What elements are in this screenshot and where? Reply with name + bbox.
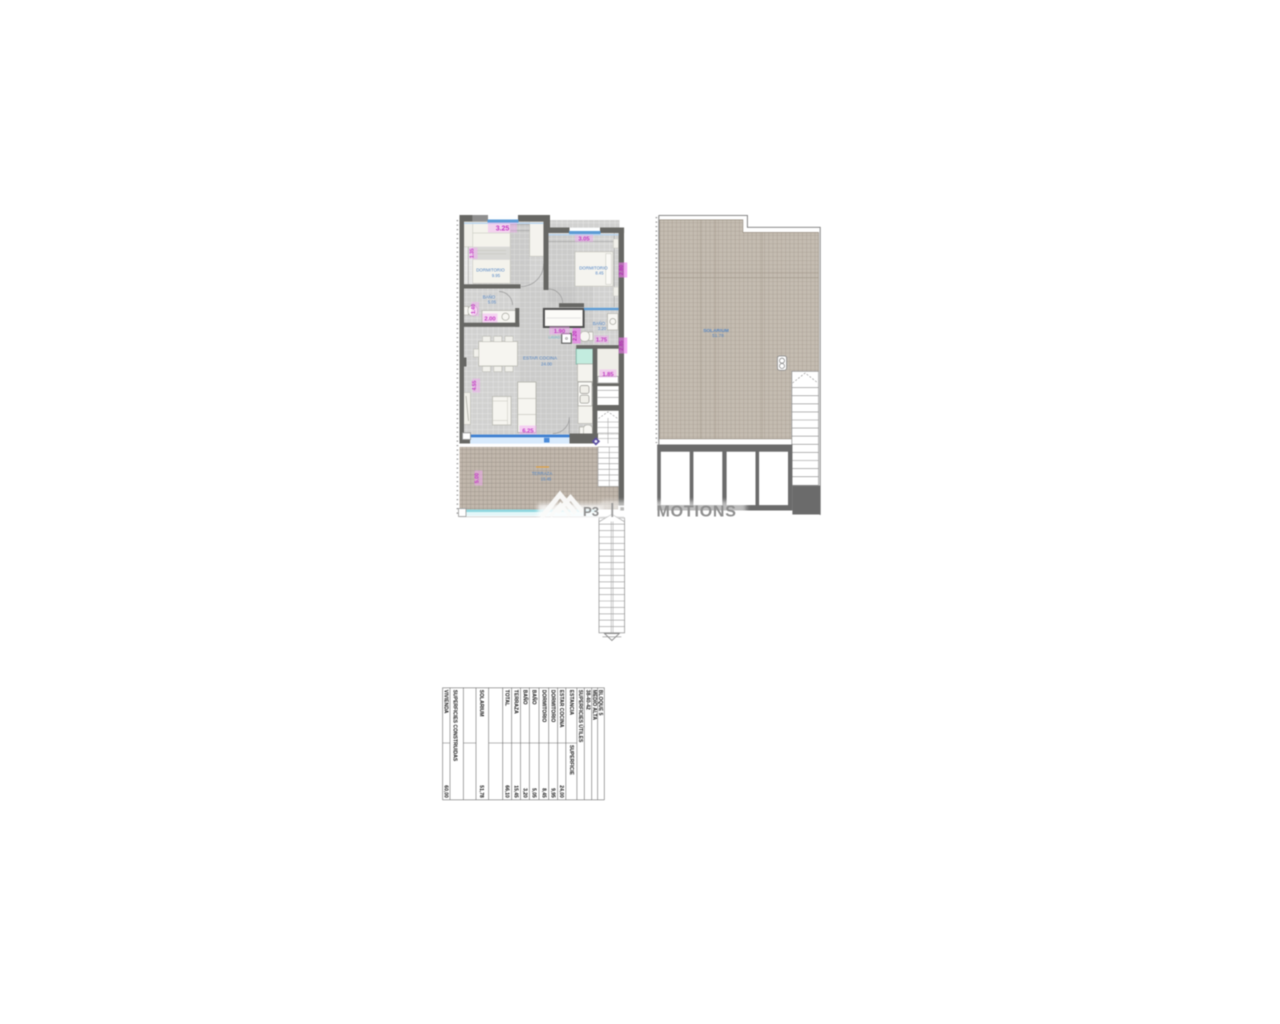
svg-text:5.05: 5.05 (488, 300, 497, 305)
svg-text:ESTAR COCINA: ESTAR COCINA (558, 690, 564, 728)
svg-text:6.25: 6.25 (522, 429, 534, 435)
svg-text:4.55: 4.55 (472, 380, 478, 390)
svg-text:15.45: 15.45 (541, 477, 552, 482)
svg-text:51,78: 51,78 (478, 785, 484, 798)
svg-text:1.85: 1.85 (602, 372, 614, 378)
svg-text:TERRAZA: TERRAZA (513, 690, 519, 714)
svg-text:DORMITORIO: DORMITORIO (579, 266, 608, 271)
svg-text:3.25: 3.25 (496, 226, 510, 233)
svg-text:PRO: PRO (617, 504, 654, 521)
svg-text:1.40: 1.40 (471, 304, 477, 314)
svg-text:3,20: 3,20 (522, 788, 528, 798)
svg-text:9,95: 9,95 (550, 788, 556, 798)
svg-text:MOTIONS: MOTIONS (657, 504, 737, 521)
svg-text:3.05: 3.05 (578, 237, 590, 243)
svg-text:BAÑO: BAÑO (531, 690, 538, 705)
svg-text:5,05: 5,05 (531, 788, 537, 798)
svg-text:2.20: 2.20 (573, 331, 579, 341)
svg-text:DORMITORIO: DORMITORIO (550, 690, 556, 723)
svg-text:38-40-42: 38-40-42 (584, 690, 590, 710)
svg-text:8.45: 8.45 (595, 271, 604, 276)
svg-text:VIVIENDA: VIVIENDA (443, 690, 449, 714)
svg-text:LAVAD.: LAVAD. (549, 336, 562, 340)
svg-text:TOTAL: TOTAL (504, 690, 510, 706)
svg-text:2.80: 2.80 (619, 265, 625, 275)
svg-text:15,45: 15,45 (513, 785, 519, 798)
svg-text:P3: P3 (583, 504, 599, 519)
svg-text:3.20: 3.20 (598, 326, 607, 331)
svg-text:8,45: 8,45 (540, 788, 546, 798)
svg-text:2.85: 2.85 (619, 340, 625, 350)
svg-text:ESTANCIA: ESTANCIA (568, 690, 574, 716)
svg-text:1.35: 1.35 (470, 248, 476, 258)
svg-text:BAÑO: BAÑO (522, 690, 529, 705)
svg-text:DORMITORIO: DORMITORIO (540, 690, 546, 723)
svg-text:DORMITORIO: DORMITORIO (476, 268, 505, 273)
svg-text:SUPERFICIES CONSTRUIDAS: SUPERFICIES CONSTRUIDAS (452, 690, 458, 762)
svg-text:SUPERFICIES ÚTILES: SUPERFICIES ÚTILES (577, 690, 584, 743)
svg-text:MEDIO ALTA: MEDIO ALTA (591, 690, 597, 721)
svg-text:TERRAZA: TERRAZA (532, 471, 553, 476)
svg-text:66,10: 66,10 (504, 785, 510, 798)
svg-text:ESTAR COCINA: ESTAR COCINA (523, 356, 558, 361)
svg-text:24,00: 24,00 (558, 785, 564, 798)
svg-text:24.00: 24.00 (541, 362, 553, 367)
svg-text:1.90: 1.90 (554, 329, 565, 335)
svg-text:5.00: 5.00 (475, 473, 481, 483)
svg-text:SUPERFICIE: SUPERFICIE (568, 745, 574, 776)
svg-text:1.75: 1.75 (596, 338, 607, 344)
svg-text:51.78: 51.78 (712, 333, 724, 338)
svg-text:2.00: 2.00 (484, 317, 495, 323)
svg-text:SOLARIUM: SOLARIUM (478, 690, 484, 717)
svg-text:9.95: 9.95 (492, 273, 501, 278)
svg-text:60,00: 60,00 (443, 785, 449, 798)
